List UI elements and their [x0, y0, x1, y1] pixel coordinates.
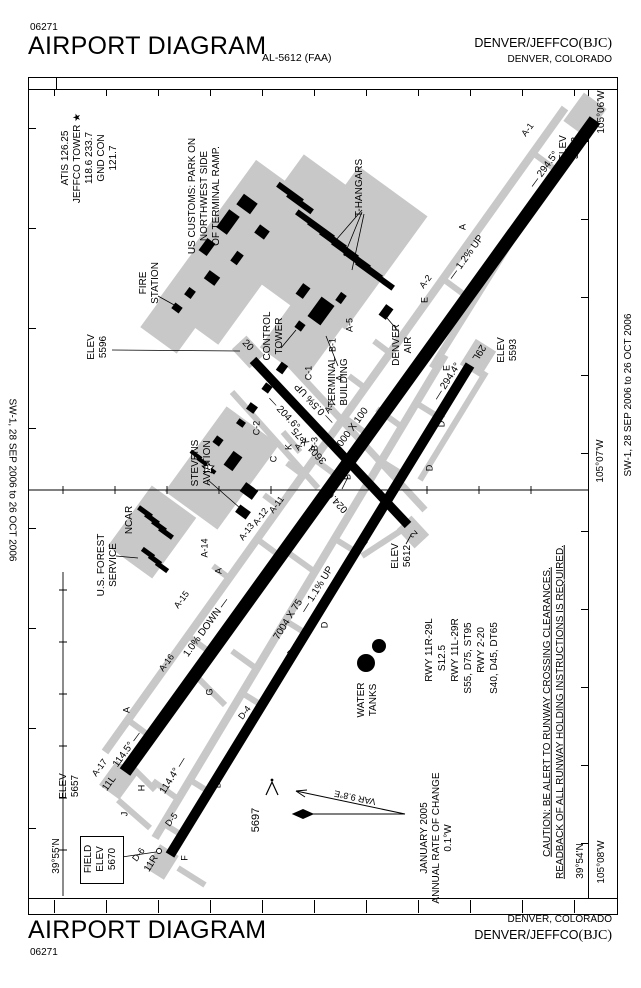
taxiway-label: G [205, 688, 214, 695]
taxiway-label: C-1 [304, 366, 313, 381]
rwy-2-elev-value: 5612 [403, 545, 414, 567]
water-tank-2 [357, 654, 375, 672]
latitude-label-right: 39°54'N [576, 843, 587, 878]
taxiway-label: D [425, 465, 434, 472]
caution-note-2: READBACK OF ALL RUNWAY HOLDING INSTRUCTI… [556, 545, 567, 879]
fire-station-label-2: STATION [151, 262, 162, 304]
taxiway-label: A [458, 224, 467, 230]
taxiway-label: E [420, 297, 429, 303]
control-tower-label-1: CONTROL [263, 312, 274, 361]
control-tower-label-2: TOWER [275, 317, 286, 354]
rwy-29l-elev-label: ELEV [497, 337, 508, 363]
tower-name: JEFFCO TOWER ★ [73, 113, 84, 203]
taxiway-label: D [213, 782, 222, 789]
field-elev-point [157, 849, 162, 854]
taxiway-label: B-3 [310, 437, 319, 451]
terminal-label-2: BUILDING [340, 358, 351, 405]
taxiway-label: C [269, 456, 278, 463]
ground-frequency: 121.7 [109, 145, 120, 170]
taxiway-label: D-1 [437, 413, 446, 428]
rwy-data-3: RWY 11L-29R [451, 618, 462, 681]
customs-note-1: US CUSTOMS: PARK ON [188, 138, 199, 254]
variation-note-3: 0.1°W [444, 824, 455, 851]
obstruction-icon [266, 779, 278, 795]
rwy-data-1: RWY 11R-29L [425, 618, 436, 681]
taxiway-label: C [285, 397, 294, 404]
forest-service-label-2: SERVICE [109, 543, 120, 587]
rwy-20-elev-label: ELEV [87, 334, 98, 360]
taxiway-label: J [120, 812, 129, 817]
longitude-label-bottom: 105°08'W [597, 840, 608, 883]
stevens-label-1: STEVENS [191, 440, 202, 487]
airport-diagram-sheet: 06271 AIRPORT DIAGRAM AL-5612 (FAA) DENV… [0, 0, 641, 988]
rwy-data-4: S55, D75, ST95 [464, 622, 475, 693]
taxiway-label: A [122, 707, 131, 713]
variation-note-2: ANNUAL RATE OF CHANGE [432, 772, 443, 903]
rwy-20-elev-value: 5596 [99, 336, 110, 358]
field-elev-value: 5670 [108, 848, 119, 870]
field-elev-line-2: ELEV [96, 846, 107, 872]
taxiway-label: E [442, 365, 451, 371]
customs-note-3: OF TERMINAL RAMP. [212, 146, 223, 246]
longitude-label-top: 105°06'W [597, 90, 608, 133]
latitude-label-left: 39°55'N [52, 838, 63, 873]
fire-station-label-1: FIRE [139, 272, 150, 295]
taxiway-label: B-1 [328, 338, 337, 352]
taxiway-label: A-14 [200, 538, 209, 557]
rwy-29r-elev-label: ELEV [559, 135, 570, 161]
stevens-label-2: AVIATION [203, 440, 214, 485]
ground-control: GND CON [97, 134, 108, 181]
denver-air-building [379, 304, 394, 320]
water-tanks-label-2: TANKS [369, 684, 380, 717]
rwy-data-5: RWY 2-20 [477, 627, 488, 673]
rwy-11l-elev-label: ELEV [59, 773, 70, 799]
atis-frequency: ATIS 126.25 [61, 131, 72, 186]
taxiway-label: A [214, 568, 223, 574]
denver-air-label-1: DENVER [392, 324, 403, 366]
rwy-29l-elev-value: 5593 [509, 339, 520, 361]
taxiway-label: H [137, 785, 146, 792]
ncar-label: NCAR [125, 506, 136, 534]
water-tank-1 [372, 639, 386, 653]
caution-note-1: CAUTION: BE ALERT TO RUNWAY CROSSING CLE… [543, 567, 554, 857]
forest-service-label-1: U.S. FOREST [97, 534, 108, 597]
rwy-data-6: S40, D45, DT65 [490, 622, 501, 694]
taxiway-label: A [335, 375, 344, 381]
water-tanks-label-1: WATER [357, 683, 368, 718]
variation-note-1: JANUARY 2005 [420, 802, 431, 873]
t-hangars-label: T-HANGARS [355, 159, 366, 217]
taxiway-label: F [180, 855, 189, 861]
rwy-2-elev-label: ELEV [391, 543, 402, 569]
rwy-data-2: S12.5 [438, 645, 449, 671]
taxiway-label: C-2 [252, 421, 261, 436]
taxiway-f [178, 868, 205, 885]
field-elev-line-1: FIELD [84, 845, 95, 873]
taxiway-label: A-5 [345, 318, 354, 332]
rwy-11l-elev-value: 5657 [71, 775, 82, 797]
taxiway-label: K [284, 444, 293, 450]
customs-note-2: NORTHWEST SIDE [200, 151, 211, 241]
taxiway-label: D [320, 622, 329, 629]
longitude-label-mid: 105°07'W [596, 439, 607, 482]
tower-frequencies: 118.6 233.7 [85, 132, 96, 184]
denver-air-label-2: AIR [404, 337, 415, 354]
obstruction-elevation: 5697 [251, 808, 263, 832]
rwy-29r-elev-value: 5562 [571, 137, 582, 159]
taxiway-label: B [343, 474, 352, 480]
